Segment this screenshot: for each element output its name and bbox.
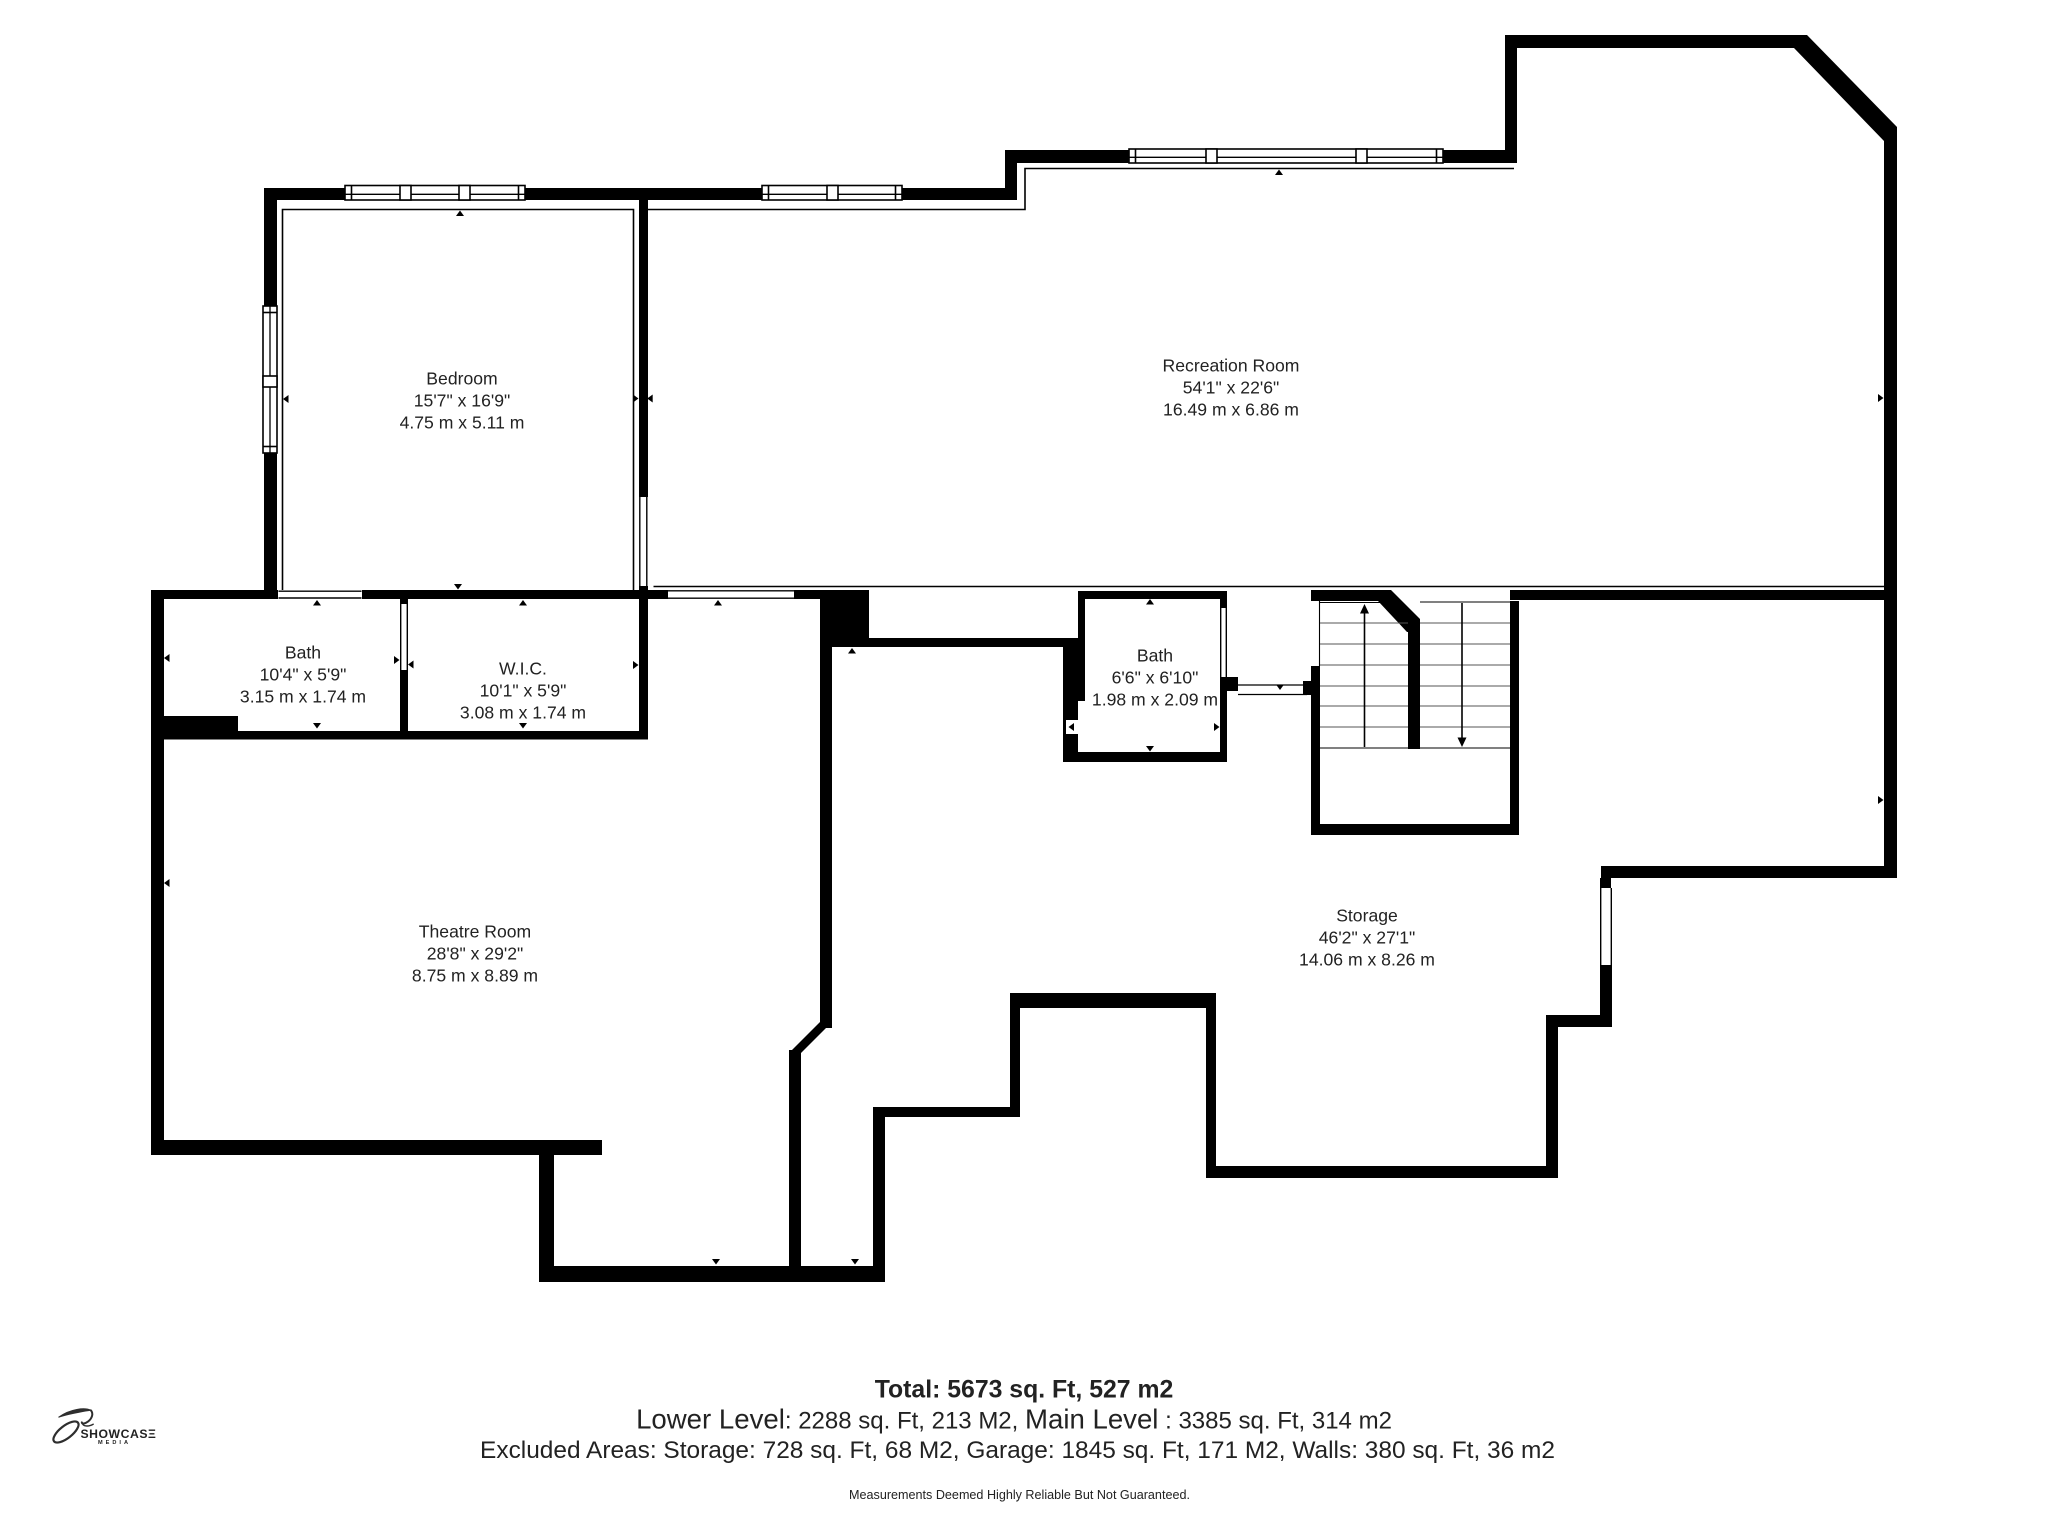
svg-text:Lower Level: 2288 sq. Ft, 213: Lower Level: 2288 sq. Ft, 213 M2, Main L… bbox=[636, 1404, 1392, 1435]
svg-text:6'6" x 6'10": 6'6" x 6'10" bbox=[1112, 667, 1199, 687]
svg-text:16.49 m x 6.86 m: 16.49 m x 6.86 m bbox=[1163, 399, 1299, 419]
svg-text:8.75 m x 8.89 m: 8.75 m x 8.89 m bbox=[412, 965, 538, 985]
svg-text:28'8" x 29'2": 28'8" x 29'2" bbox=[427, 943, 524, 963]
svg-text:1.98 m x 2.09 m: 1.98 m x 2.09 m bbox=[1092, 689, 1218, 709]
svg-text:Recreation Room: Recreation Room bbox=[1163, 355, 1300, 375]
svg-text:Theatre Room: Theatre Room bbox=[419, 921, 531, 941]
svg-text:Excluded Areas: Storage: 728 s: Excluded Areas: Storage: 728 sq. Ft, 68 … bbox=[480, 1437, 1555, 1464]
svg-text:10'4" x 5'9": 10'4" x 5'9" bbox=[260, 664, 347, 684]
svg-text:Bath: Bath bbox=[285, 642, 321, 662]
svg-text:3.08 m x 1.74 m: 3.08 m x 1.74 m bbox=[460, 702, 586, 722]
svg-text:4.75 m x 5.11 m: 4.75 m x 5.11 m bbox=[400, 412, 525, 432]
svg-text:46'2" x 27'1": 46'2" x 27'1" bbox=[1319, 927, 1416, 947]
svg-text:Storage: Storage bbox=[1336, 905, 1398, 925]
svg-text:Total: 5673 sq. Ft, 527 m2: Total: 5673 sq. Ft, 527 m2 bbox=[875, 1377, 1174, 1404]
svg-text:54'1" x 22'6": 54'1" x 22'6" bbox=[1183, 377, 1280, 397]
svg-text:Bath: Bath bbox=[1137, 645, 1173, 665]
svg-text:MEDIA: MEDIA bbox=[98, 1440, 131, 1446]
svg-text:W.I.C.: W.I.C. bbox=[499, 658, 547, 678]
svg-text:Bedroom: Bedroom bbox=[426, 368, 497, 388]
svg-text:15'7" x 16'9": 15'7" x 16'9" bbox=[414, 390, 511, 410]
svg-text:SHOWCASΞ: SHOWCASΞ bbox=[81, 1427, 157, 1441]
svg-text:3.15 m x 1.74 m: 3.15 m x 1.74 m bbox=[240, 686, 366, 706]
svg-text:Measurements Deemed Highly Rel: Measurements Deemed Highly Reliable But … bbox=[849, 1488, 1190, 1502]
svg-text:10'1" x 5'9": 10'1" x 5'9" bbox=[480, 680, 567, 700]
svg-text:14.06 m x 8.26 m: 14.06 m x 8.26 m bbox=[1299, 949, 1435, 969]
